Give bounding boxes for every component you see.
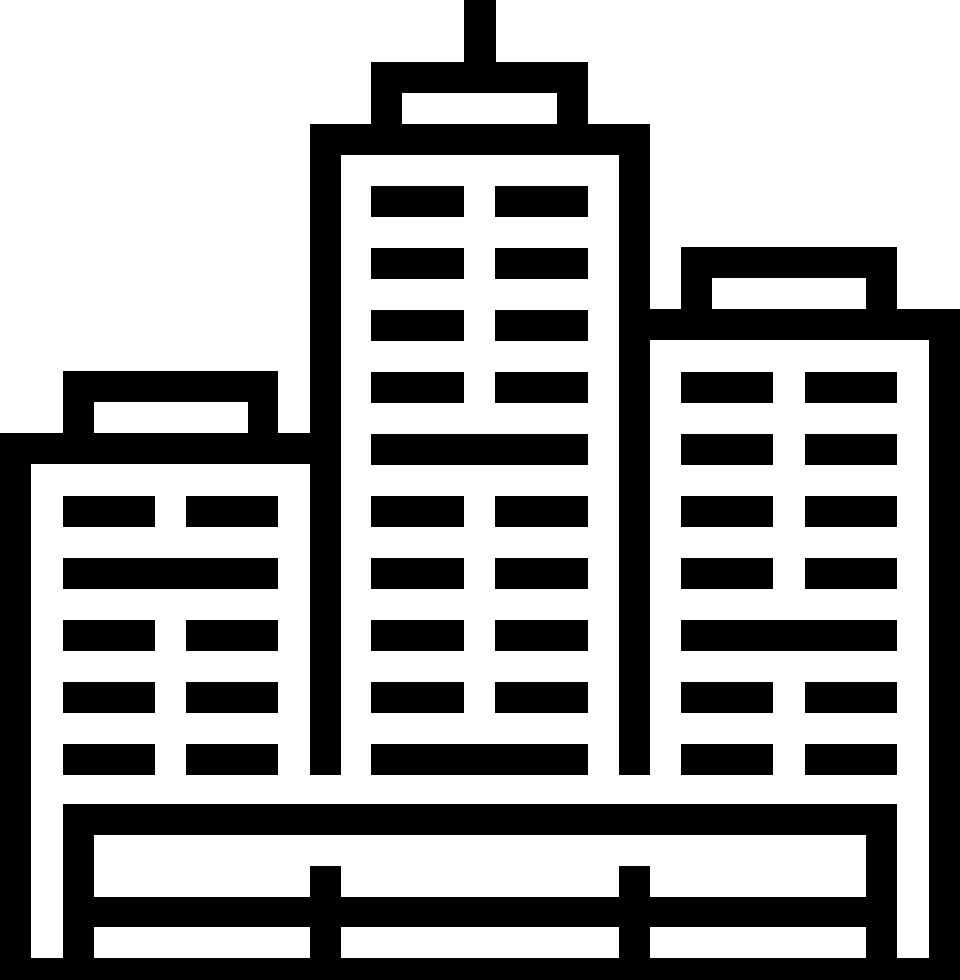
right-window — [805, 744, 897, 775]
center-window — [495, 186, 588, 217]
base-left-post — [63, 804, 94, 958]
right-window — [681, 682, 773, 713]
base-right-post — [866, 804, 897, 958]
left-window — [186, 620, 278, 651]
right-window — [805, 434, 897, 465]
right-window — [681, 558, 773, 589]
left-window-wide — [63, 558, 278, 589]
left-window — [63, 744, 155, 775]
right-window — [681, 744, 773, 775]
center-window — [495, 248, 588, 279]
left-window — [186, 496, 278, 527]
left-window — [186, 744, 278, 775]
left-window — [63, 682, 155, 713]
right-window-wide — [681, 620, 897, 651]
center-window — [371, 558, 464, 589]
left-window — [186, 682, 278, 713]
left-top-band — [0, 433, 310, 464]
right-window — [805, 558, 897, 589]
right-window — [681, 372, 773, 403]
left-roof-cap-window — [94, 402, 248, 433]
left-outer-wall — [0, 433, 31, 958]
center-window — [495, 496, 588, 527]
center-window — [371, 496, 464, 527]
left-window — [63, 496, 155, 527]
right-outer-wall — [929, 309, 960, 958]
right-top-band — [650, 309, 960, 340]
center-right-wall — [619, 124, 650, 775]
center-roof-cap-window — [402, 93, 557, 124]
base-top-rail — [63, 804, 897, 835]
left-window — [63, 620, 155, 651]
right-window — [681, 496, 773, 527]
center-window-wide — [371, 434, 588, 465]
right-roof-cap-window — [712, 278, 866, 309]
center-window — [495, 682, 588, 713]
center-window — [371, 682, 464, 713]
center-window — [371, 310, 464, 341]
center-window-wide — [371, 744, 588, 775]
center-top-band — [310, 124, 650, 155]
center-window — [495, 310, 588, 341]
center-window — [371, 620, 464, 651]
right-window — [805, 682, 897, 713]
center-window — [371, 248, 464, 279]
right-window — [805, 372, 897, 403]
center-left-wall — [310, 124, 341, 775]
base-mid-rail — [63, 897, 897, 927]
center-window — [371, 186, 464, 217]
icon-canvas — [0, 0, 960, 980]
center-window — [371, 372, 464, 403]
city-buildings-icon — [0, 0, 960, 980]
center-window — [495, 620, 588, 651]
right-window — [805, 496, 897, 527]
center-window — [495, 558, 588, 589]
right-window — [681, 434, 773, 465]
base-bottom-band — [0, 958, 960, 980]
center-window — [495, 372, 588, 403]
